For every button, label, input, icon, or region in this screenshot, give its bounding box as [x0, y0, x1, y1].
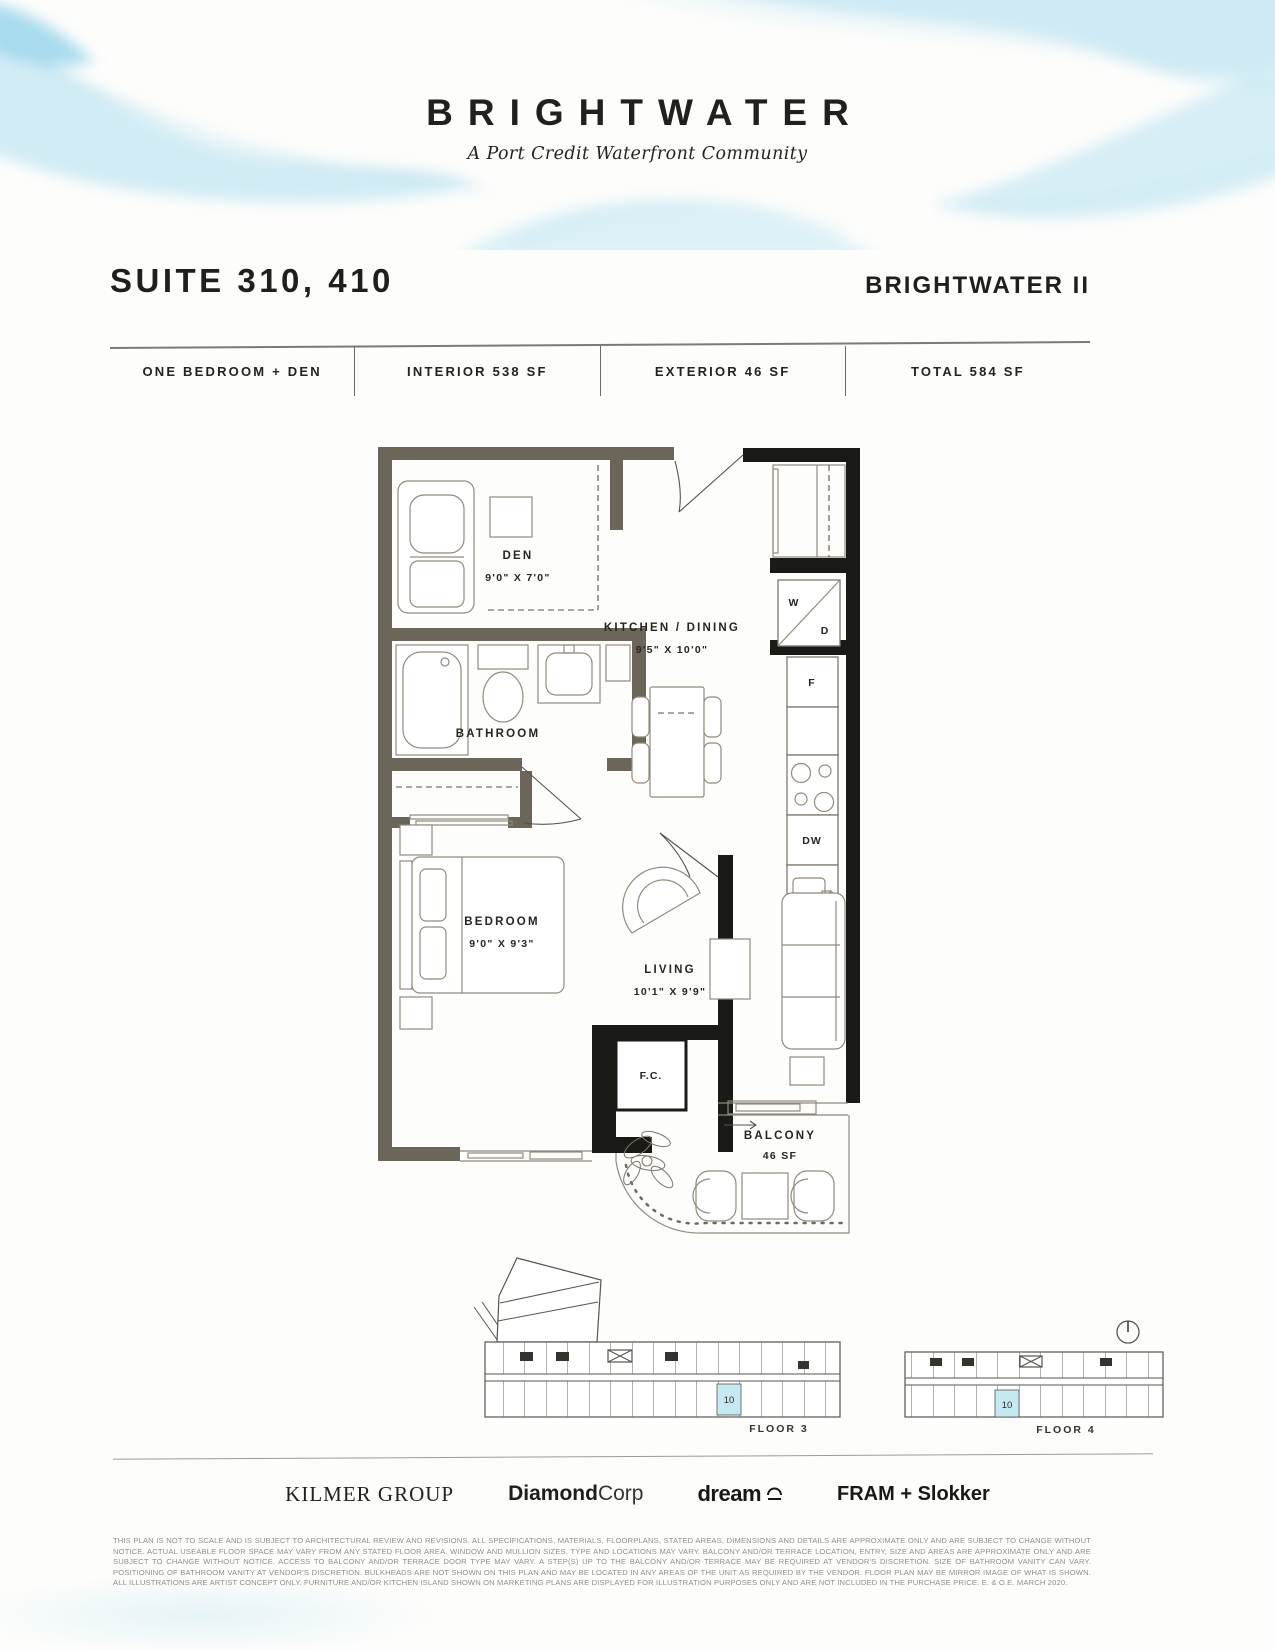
- fridge-label: F: [808, 677, 815, 689]
- lounge-chair-icon: [623, 867, 700, 933]
- bedroom-name: BEDROOM: [464, 916, 539, 928]
- bath-shelf: [606, 645, 630, 681]
- floor3-label: FLOOR 3: [749, 1423, 809, 1435]
- fram-slokker-logo: FRAM + Slokker: [837, 1483, 990, 1506]
- stove-icon: [787, 755, 838, 815]
- room-bathroom: BATHROOM: [396, 645, 630, 824]
- living-name: LIVING: [644, 964, 696, 976]
- brand-block: BRIGHTWATER A Port Credit Waterfront Com…: [0, 92, 1275, 164]
- sofa-icon: [782, 893, 845, 1049]
- nightstand-top: [400, 825, 432, 855]
- brand-logo: BRIGHTWATER: [0, 92, 1275, 134]
- bathroom-name: BATHROOM: [456, 728, 540, 740]
- bedroom-dims: 9'0" X 9'3": [469, 938, 534, 950]
- sofa-side-table: [790, 1057, 824, 1085]
- kitchen-appliances: F DW: [787, 657, 838, 928]
- floor4-label: FLOOR 4: [1036, 1424, 1096, 1436]
- project-title: BRIGHTWATER II: [865, 272, 1090, 300]
- living-dims: 10'1" X 9'9": [634, 986, 707, 998]
- spec-interior-area: INTERIOR 538 SF: [354, 346, 599, 396]
- footer-rule: [113, 1453, 1153, 1459]
- keyplan-floor-3: 10 FLOOR 3: [474, 1258, 840, 1435]
- dream-house-icon: [766, 1486, 783, 1502]
- washer-label: W: [789, 597, 800, 609]
- kitchen-name: KITCHEN / DINING: [604, 622, 740, 634]
- keyplans: 10 FLOOR 3 10 FLOOR 4: [460, 1245, 1170, 1445]
- dishwasher-label: DW: [802, 835, 822, 847]
- washer-dryer: W D: [778, 580, 840, 646]
- vanity-sink-icon: [538, 645, 600, 703]
- unit-number-floor4: 10: [1002, 1400, 1013, 1411]
- spec-exterior-area: EXTERIOR 46 SF: [600, 346, 845, 396]
- fan-coil-label: F.C.: [640, 1070, 663, 1082]
- spec-unit-type: ONE BEDROOM + DEN: [110, 346, 354, 396]
- partner-logos: KILMER GROUP DiamondCorp dream FRAM + Sl…: [0, 1468, 1275, 1520]
- spec-bar: ONE BEDROOM + DEN INTERIOR 538 SF EXTERI…: [110, 346, 1090, 396]
- den-side-table: [490, 497, 532, 537]
- elevator-icon: [608, 1350, 632, 1362]
- den-sofa: [398, 481, 474, 613]
- unit-number-floor3: 10: [724, 1395, 735, 1406]
- fan-coil-closet: F.C.: [616, 1040, 686, 1110]
- keyplan-floor-4: 10 FLOOR 4: [905, 1352, 1163, 1436]
- balcony-dims: 46 SF: [763, 1150, 798, 1162]
- kilmer-group-logo: KILMER GROUP: [285, 1482, 454, 1507]
- floorplan-sheet: BRIGHTWATER A Port Credit Waterfront Com…: [0, 0, 1275, 1650]
- compass-icon: [1117, 1321, 1139, 1343]
- den-name: DEN: [503, 550, 534, 562]
- bedroom-window: [460, 1151, 592, 1161]
- diamondcorp-logo: DiamondCorp: [508, 1482, 643, 1506]
- brand-tagline: A Port Credit Waterfront Community: [0, 144, 1275, 164]
- toilet-icon: [478, 645, 528, 722]
- den-dims: 9'0" X 7'0": [485, 572, 550, 584]
- title-row: SUITE 310, 410 BRIGHTWATER II: [110, 262, 1090, 308]
- dryer-label: D: [821, 625, 830, 637]
- balcony-furniture: [693, 1171, 834, 1221]
- balcony-name: BALCONY: [744, 1130, 816, 1142]
- living-balcony-door: [718, 1101, 848, 1129]
- nightstand-bottom: [400, 997, 432, 1029]
- suite-title: SUITE 310, 410: [110, 262, 394, 300]
- room-den: DEN 9'0" X 7'0": [398, 465, 598, 613]
- unit-floorplan: W D F DW: [370, 425, 870, 1275]
- dream-logo: dream: [697, 1481, 783, 1507]
- entry-door: [675, 455, 743, 512]
- kitchen-dims: 9'5" X 10'0": [636, 644, 709, 656]
- coffee-table: [710, 939, 750, 999]
- elevator-icon: [1020, 1356, 1042, 1367]
- spec-total-area: TOTAL 584 SF: [845, 346, 1090, 396]
- foyer-closet: [773, 465, 845, 557]
- legal-disclaimer: THIS PLAN IS NOT TO SCALE AND IS SUBJECT…: [113, 1536, 1091, 1589]
